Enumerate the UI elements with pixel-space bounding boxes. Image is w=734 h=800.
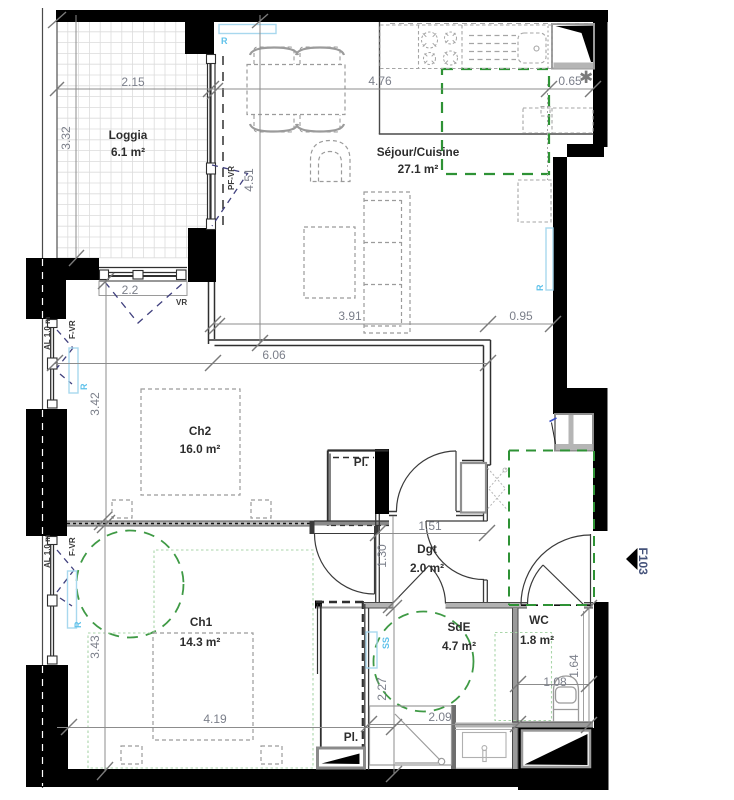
svg-text:1.30: 1.30 — [375, 544, 389, 568]
svg-text:3.32: 3.32 — [59, 126, 73, 150]
svg-text:4.19: 4.19 — [203, 712, 227, 726]
svg-text:3.43: 3.43 — [88, 635, 102, 659]
svg-text:6.06: 6.06 — [262, 348, 286, 362]
svg-text:Pl.: Pl. — [354, 455, 368, 469]
svg-text:0.95: 0.95 — [509, 309, 533, 323]
svg-text:AL 1.0 m: AL 1.0 m — [43, 535, 52, 568]
svg-text:4.76: 4.76 — [368, 74, 392, 88]
svg-text:Loggia: Loggia — [109, 128, 148, 142]
svg-text:SS: SS — [381, 637, 391, 649]
svg-text:2.0 m²: 2.0 m² — [410, 561, 444, 575]
svg-text:F103: F103 — [636, 548, 650, 576]
svg-text:R: R — [73, 621, 83, 628]
svg-text:14.3 m²: 14.3 m² — [180, 635, 221, 649]
svg-text:AL 1.0 m: AL 1.0 m — [43, 317, 52, 350]
svg-text:SdE: SdE — [448, 620, 471, 634]
svg-text:Dgt: Dgt — [417, 542, 437, 556]
svg-text:2.27: 2.27 — [375, 677, 389, 701]
svg-text:1.08: 1.08 — [543, 675, 567, 689]
svg-text:3.42: 3.42 — [88, 392, 102, 416]
svg-text:3.91: 3.91 — [338, 309, 362, 323]
svg-text:✱: ✱ — [579, 68, 593, 87]
svg-text:Ch2: Ch2 — [189, 424, 212, 438]
svg-text:4.51: 4.51 — [242, 168, 256, 192]
svg-text:16.0 m²: 16.0 m² — [180, 442, 221, 456]
svg-text:F-VR: F-VR — [68, 320, 77, 339]
svg-text:R: R — [535, 284, 545, 291]
svg-text:R: R — [221, 36, 228, 46]
svg-text:1.8 m²: 1.8 m² — [520, 633, 554, 647]
svg-text:VR: VR — [176, 298, 187, 307]
svg-text:2.15: 2.15 — [121, 75, 145, 89]
svg-text:2.09: 2.09 — [428, 710, 452, 724]
svg-text:2.2: 2.2 — [122, 283, 139, 297]
svg-text:PF-VR: PF-VR — [227, 166, 236, 190]
svg-text:F-VR: F-VR — [68, 537, 77, 556]
svg-text:Ch1: Ch1 — [190, 615, 213, 629]
svg-text:1.64: 1.64 — [567, 654, 581, 678]
svg-text:Pl.: Pl. — [344, 730, 358, 744]
svg-text:1.51: 1.51 — [418, 519, 442, 533]
svg-text:6.1 m²: 6.1 m² — [111, 145, 145, 159]
svg-text:WC: WC — [529, 613, 549, 627]
svg-text:R: R — [79, 383, 89, 390]
svg-text:4.7 m²: 4.7 m² — [442, 639, 476, 653]
svg-text:Séjour/Cuisine: Séjour/Cuisine — [377, 145, 460, 159]
svg-text:27.1 m²: 27.1 m² — [398, 162, 439, 176]
